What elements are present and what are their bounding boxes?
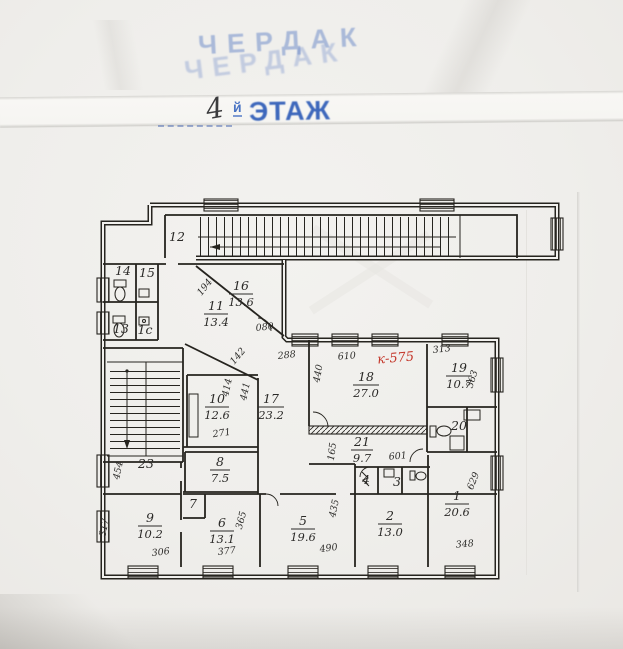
window <box>288 566 318 578</box>
closet-icon <box>189 394 198 437</box>
sink-icon <box>139 289 149 297</box>
svg-text:9: 9 <box>146 510 154 525</box>
svg-text:12: 12 <box>169 229 185 244</box>
svg-text:13: 13 <box>113 321 129 336</box>
svg-text:7.5: 7.5 <box>211 471 229 485</box>
dim-414: 414 <box>220 377 235 398</box>
svg-text:5: 5 <box>299 513 307 528</box>
svg-text:13.4: 13.4 <box>203 315 229 329</box>
window <box>445 566 475 578</box>
svg-text:9.7: 9.7 <box>353 451 372 465</box>
dim-440: 440 <box>311 364 325 385</box>
room-label-20: 20 <box>450 418 467 433</box>
room-label-5: 5 19.6 <box>290 513 316 544</box>
dim-490: 490 <box>318 542 338 556</box>
svg-text:21: 21 <box>353 434 370 449</box>
svg-text:4: 4 <box>361 472 370 487</box>
room-label-11: 11 13.4 <box>203 298 229 329</box>
room-label-6: 6 13.1 <box>209 515 235 546</box>
stairs-upper <box>198 215 460 258</box>
stairs-main <box>107 362 183 456</box>
room-label-21: 21 9.7 <box>351 434 373 465</box>
svg-text:20.6: 20.6 <box>443 505 470 519</box>
room-label-14: 14 <box>115 263 131 278</box>
window <box>97 455 109 487</box>
room-label-15: 15 <box>139 265 155 280</box>
svg-text:13.1: 13.1 <box>209 532 235 546</box>
dim-194: 194 <box>195 277 215 298</box>
room-label-2: 2 13.0 <box>377 508 403 539</box>
room-label-3: 3 <box>393 474 401 489</box>
dim-080: 080 <box>255 321 274 334</box>
room-label-23: 23 <box>137 456 154 471</box>
svg-text:20: 20 <box>450 418 467 433</box>
svg-text:8: 8 <box>216 454 224 469</box>
window <box>491 456 503 490</box>
window <box>420 199 454 211</box>
svg-text:12.6: 12.6 <box>204 408 230 422</box>
dim-288: 288 <box>276 349 296 362</box>
svg-text:1с: 1с <box>138 322 153 337</box>
window <box>97 278 109 302</box>
svg-text:16: 16 <box>233 278 249 293</box>
dim-610: 610 <box>337 350 356 362</box>
room-label-9: 9 10.2 <box>137 510 163 541</box>
svg-text:7: 7 <box>189 496 197 511</box>
door-arc <box>410 449 423 462</box>
room-label-4: 4 <box>361 472 370 487</box>
room-label-13: 13 <box>113 321 129 336</box>
window <box>97 312 109 334</box>
scanned-floorplan-page: ЧЕРДАК ЧЕРДАК 4 й ЭТАЖ <box>0 0 623 649</box>
toilet-icon <box>410 471 426 480</box>
dim-306: 306 <box>151 546 170 559</box>
window <box>292 334 318 346</box>
room-label-16: 16 13.6 <box>228 278 254 309</box>
dim-142: 142 <box>228 346 248 367</box>
svg-text:1: 1 <box>453 488 461 503</box>
dim-317: 317 <box>98 517 112 538</box>
svg-text:13.0: 13.0 <box>377 525 403 539</box>
svg-text:14: 14 <box>115 263 131 278</box>
dim-441: 441 <box>238 381 253 402</box>
dim-601: 601 <box>388 450 407 463</box>
svg-text:13.6: 13.6 <box>228 295 254 309</box>
svg-text:19.6: 19.6 <box>290 530 316 544</box>
dim-165: 165 <box>326 442 339 461</box>
svg-text:18: 18 <box>358 369 374 384</box>
dim-271: 271 <box>211 427 231 441</box>
window <box>491 358 503 392</box>
dim-629: 629 <box>465 471 482 492</box>
room-label-1: 1 20.6 <box>443 488 470 519</box>
door-arc <box>313 412 328 427</box>
svg-text:6: 6 <box>218 515 226 530</box>
dim-454: 454 <box>111 460 126 481</box>
room-label-18: 18 27.0 <box>352 369 379 400</box>
dim-435: 435 <box>327 498 342 519</box>
svg-text:10.2: 10.2 <box>137 527 163 541</box>
dim-313: 313 <box>432 343 451 356</box>
svg-text:2: 2 <box>385 508 394 523</box>
window <box>203 566 233 578</box>
window <box>368 566 398 578</box>
room-label-8: 8 7.5 <box>210 454 230 485</box>
window <box>204 199 238 211</box>
hatched-bearing-wall <box>309 426 427 434</box>
room-label-17: 17 23.2 <box>257 391 284 422</box>
svg-text:11: 11 <box>208 298 224 313</box>
room-label-7: 7 <box>189 496 197 511</box>
room-label-12: 12 <box>169 229 185 244</box>
svg-text:23: 23 <box>137 456 154 471</box>
svg-text:17: 17 <box>263 391 279 406</box>
dim-365: 365 <box>234 510 249 530</box>
svg-text:15: 15 <box>139 265 155 280</box>
window <box>551 218 563 250</box>
dim-348: 348 <box>455 538 474 551</box>
window <box>332 334 358 346</box>
svg-text:27.0: 27.0 <box>352 386 379 400</box>
svg-text:19: 19 <box>451 360 467 375</box>
room-label-1c: 1с <box>138 322 153 337</box>
window <box>372 334 398 346</box>
toilet-icon <box>114 280 126 301</box>
toilet-icon <box>430 426 451 437</box>
shower-tray-icon <box>450 436 464 450</box>
dim-377: 377 <box>217 545 237 558</box>
window <box>128 566 158 578</box>
svg-text:3: 3 <box>393 474 401 489</box>
floor-plan-svg: 1 20.6 2 13.0 3 4 5 19.6 6 <box>0 0 623 649</box>
door-arc <box>266 494 278 506</box>
red-annotation: к-575 <box>377 349 415 367</box>
dim-363: 363 <box>465 369 481 390</box>
svg-text:23.2: 23.2 <box>257 408 284 422</box>
